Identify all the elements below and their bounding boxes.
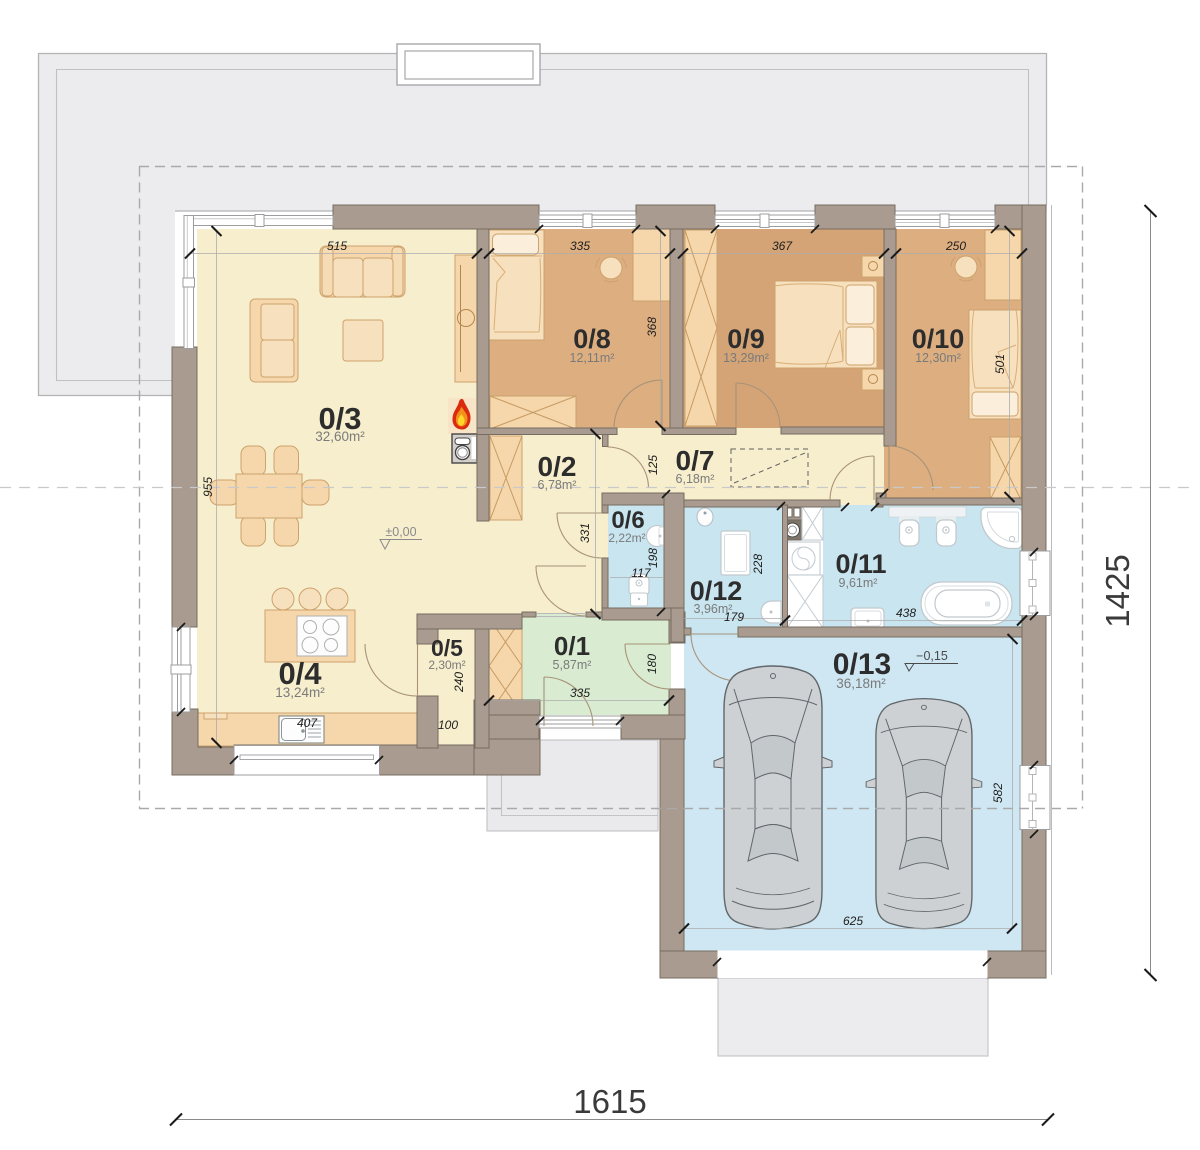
svg-text:0/1: 0/1 [554,631,590,661]
svg-text:13,24m²: 13,24m² [275,685,325,700]
svg-text:0/8: 0/8 [573,324,611,354]
svg-text:2,30m²: 2,30m² [428,658,465,672]
svg-text:32,60m²: 32,60m² [315,429,365,444]
svg-text:36,18m²: 36,18m² [836,676,886,691]
svg-text:438: 438 [896,606,916,620]
svg-text:625: 625 [843,914,863,928]
svg-text:6,78m²: 6,78m² [538,478,577,492]
svg-text:368: 368 [645,317,659,337]
svg-text:582: 582 [991,783,1005,803]
svg-text:12,11m²: 12,11m² [570,351,615,365]
svg-text:179: 179 [724,610,744,624]
svg-text:367: 367 [772,239,793,253]
svg-text:1425: 1425 [1099,554,1136,627]
svg-text:125: 125 [646,455,660,475]
svg-text:228: 228 [751,554,765,575]
svg-text:100: 100 [438,718,458,732]
svg-text:0/11: 0/11 [835,549,886,579]
svg-text:501: 501 [993,354,1007,374]
svg-text:5,87m²: 5,87m² [553,658,592,672]
svg-text:2,22m²: 2,22m² [608,531,645,545]
svg-text:331: 331 [578,523,592,543]
svg-text:407: 407 [297,716,318,730]
svg-text:250: 250 [945,239,966,253]
svg-text:180: 180 [645,654,659,674]
svg-text:335: 335 [570,239,590,253]
svg-text:335: 335 [570,686,590,700]
svg-text:9,61m²: 9,61m² [839,576,878,590]
svg-text:0/10: 0/10 [912,324,965,354]
svg-text:−0,15: −0,15 [916,649,948,663]
svg-text:12,30m²: 12,30m² [915,351,961,365]
svg-text:±0,00: ±0,00 [385,525,416,539]
svg-text:515: 515 [327,239,347,253]
svg-text:955: 955 [201,477,215,497]
svg-text:240: 240 [452,672,466,693]
svg-text:13,29m²: 13,29m² [723,351,769,365]
svg-text:1615: 1615 [573,1083,646,1120]
svg-text:0/6: 0/6 [611,507,644,534]
svg-text:198: 198 [646,548,660,568]
svg-text:0/9: 0/9 [727,324,765,354]
svg-text:6,18m²: 6,18m² [676,472,715,486]
svg-text:117: 117 [631,566,651,580]
